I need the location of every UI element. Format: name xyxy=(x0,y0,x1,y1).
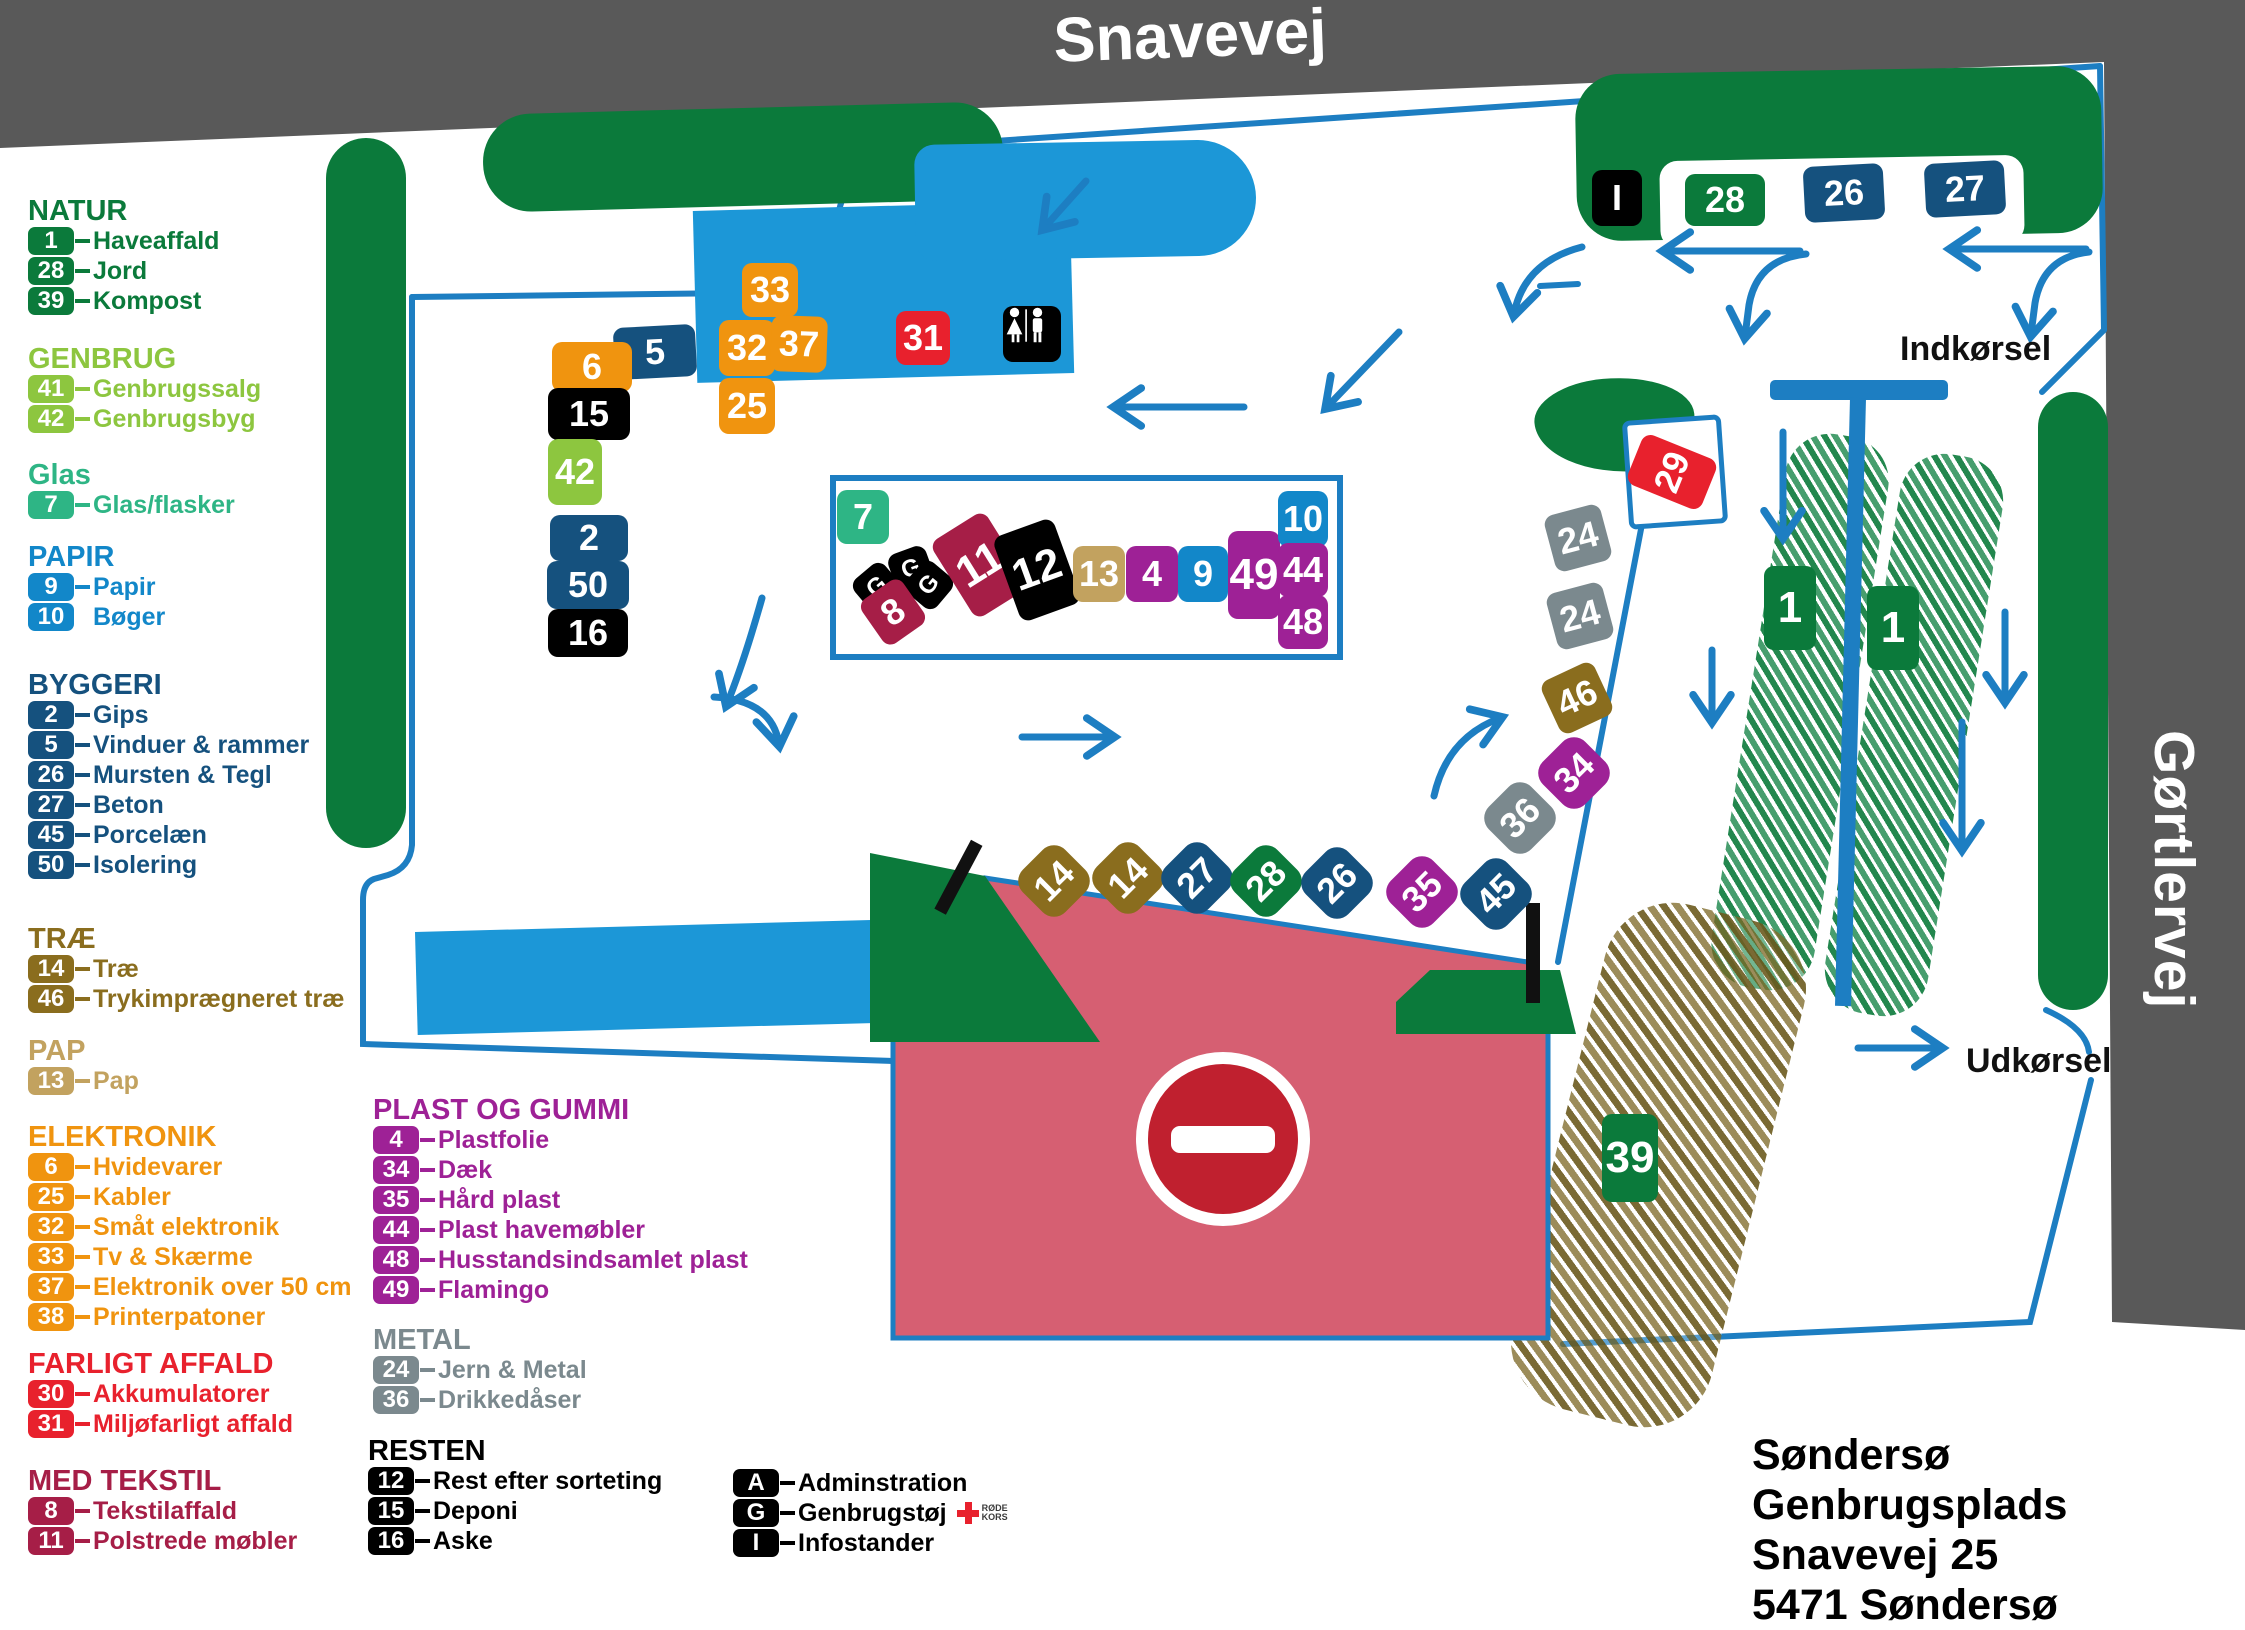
map-tag-26: 26 xyxy=(1803,163,1886,223)
legend-section-papir: PAPIR9Papir10Bøger xyxy=(28,542,165,632)
legend-label-6: Hvidevarer xyxy=(93,1153,222,1182)
legend-badge-11: 11 xyxy=(28,1527,74,1555)
legend-item-admin-G: GGenbrugstøjRØDEKORS xyxy=(733,1498,1008,1528)
legend-dash xyxy=(75,1165,90,1169)
legend-header-pap: PAP xyxy=(28,1036,139,1066)
map-tag-13: 13 xyxy=(1073,546,1125,602)
legend-item-genbrug-42: 42Genbrugsbyg xyxy=(28,404,261,434)
legend-item-plast-44: 44Plast havemøbler xyxy=(373,1215,748,1245)
legend-dash xyxy=(75,773,90,777)
map-tag-50: 50 xyxy=(547,561,629,609)
legend-label-25: Kabler xyxy=(93,1183,171,1212)
legend-label-15: Deponi xyxy=(433,1497,518,1526)
legend-label-7: Glas/flasker xyxy=(93,491,235,520)
legend-item-tekstil-11: 11Polstrede møbler xyxy=(28,1526,297,1556)
legend-dash xyxy=(75,863,90,867)
legend-label-39: Kompost xyxy=(93,287,201,316)
legend-badge-12: 12 xyxy=(368,1467,414,1495)
map-tag-27: 27 xyxy=(1924,160,2007,218)
legend-item-natur-28: 28Jord xyxy=(28,256,219,286)
legend-item-plast-4: 4Plastfolie xyxy=(373,1125,748,1155)
no-entry-bar xyxy=(1171,1126,1275,1153)
legend-dash xyxy=(415,1479,430,1483)
legend-badge-39: 39 xyxy=(28,287,74,315)
legend-label-36: Drikkedåser xyxy=(438,1386,581,1415)
legend-section-admin: AAdminstrationGGenbrugstøjRØDEKORSIInfos… xyxy=(733,1468,1008,1558)
legend-item-plast-49: 49Flamingo xyxy=(373,1275,748,1305)
exit-label: Udkørsel xyxy=(1966,1042,2112,1081)
legend-label-13: Pap xyxy=(93,1067,139,1096)
legend-item-resten-12: 12Rest efter sorteting xyxy=(368,1466,662,1496)
legend-section-glas: Glas7Glas/flasker xyxy=(28,460,235,520)
legend-label-37: Elektronik over 50 cm xyxy=(93,1273,351,1302)
map-tag-16: 16 xyxy=(548,609,628,657)
legend-header-farligt: FARLIGT AFFALD xyxy=(28,1349,293,1379)
legend-dash xyxy=(75,833,90,837)
legend-item-natur-39: 39Kompost xyxy=(28,286,219,316)
map-tag-1: 1 xyxy=(1764,566,1816,650)
legend-dash xyxy=(75,503,90,507)
map-tag-1: 1 xyxy=(1867,586,1919,670)
legend-label-16: Aske xyxy=(433,1527,493,1556)
legend-dash xyxy=(75,1225,90,1229)
legend-item-elektronik-33: 33Tv & Skærme xyxy=(28,1242,351,1272)
legend-label-27: Beton xyxy=(93,791,164,820)
legend-item-elektronik-32: 32Småt elektronik xyxy=(28,1212,351,1242)
map-tag-i: I xyxy=(1592,170,1642,226)
red-cross-text: RØDEKORS xyxy=(982,1504,1008,1522)
legend-header-genbrug: GENBRUG xyxy=(28,344,261,374)
legend-label-49: Flamingo xyxy=(438,1276,549,1305)
legend-header-metal: METAL xyxy=(373,1325,587,1355)
legend-label-9: Papir xyxy=(93,573,156,602)
legend-item-admin-A: AAdminstration xyxy=(733,1468,1008,1498)
legend-dash xyxy=(420,1258,435,1262)
map-tag-37: 37 xyxy=(770,315,828,373)
legend-label-26: Mursten & Tegl xyxy=(93,761,272,790)
legend-section-natur: NATUR1Haveaffald28Jord39Kompost xyxy=(28,196,219,316)
address-block: Søndersø Genbrugsplads Snavevej 25 5471 … xyxy=(1752,1430,2245,1630)
legend-header-byggeri: BYGGERI xyxy=(28,670,309,700)
map-tag-25: 25 xyxy=(719,378,775,434)
legend-badge-27: 27 xyxy=(28,791,74,819)
address-line3: 5471 Søndersø xyxy=(1752,1580,2245,1630)
legend-badge-24: 24 xyxy=(373,1356,419,1384)
legend-item-papir-10: 10Bøger xyxy=(28,602,165,632)
legend-item-byggeri-26: 26Mursten & Tegl xyxy=(28,760,309,790)
legend-badge-30: 30 xyxy=(28,1380,74,1408)
legend-badge-7: 7 xyxy=(28,491,74,519)
legend-badge-36: 36 xyxy=(373,1386,419,1414)
legend-label-32: Småt elektronik xyxy=(93,1213,279,1242)
legend-label-8: Tekstilaffald xyxy=(93,1497,237,1526)
legend-badge-33: 33 xyxy=(28,1243,74,1271)
map-tag-2: 2 xyxy=(550,515,628,561)
legend-badge-46: 46 xyxy=(28,985,74,1013)
legend-badge-10: 10 xyxy=(28,603,74,631)
legend-item-natur-1: 1Haveaffald xyxy=(28,226,219,256)
legend-badge-41: 41 xyxy=(28,375,74,403)
legend-item-farligt-30: 30Akkumulatorer xyxy=(28,1379,293,1409)
legend-label-31: Miljøfarligt affald xyxy=(93,1410,293,1439)
legend-item-admin-I: IInfostander xyxy=(733,1528,1008,1558)
traffic-arrows xyxy=(0,0,2245,1587)
legend-item-byggeri-2: 2Gips xyxy=(28,700,309,730)
legend-label-50: Isolering xyxy=(93,851,197,880)
legend-dash xyxy=(75,387,90,391)
legend-label-30: Akkumulatorer xyxy=(93,1380,269,1409)
map-tag-28: 28 xyxy=(1685,174,1765,226)
legend-dash xyxy=(420,1168,435,1172)
legend-badge-32: 32 xyxy=(28,1213,74,1241)
legend-dash xyxy=(420,1138,435,1142)
legend-badge-37: 37 xyxy=(28,1273,74,1301)
legend-label-46: Trykimprægneret træ xyxy=(93,985,344,1014)
legend-badge-G: G xyxy=(733,1499,779,1527)
legend-badge-25: 25 xyxy=(28,1183,74,1211)
map-tag-15: 15 xyxy=(548,388,630,440)
address-line1: Søndersø Genbrugsplads xyxy=(1752,1430,2245,1530)
red-cross-logo: RØDEKORS xyxy=(957,1502,1008,1524)
legend-label-45: Porcelæn xyxy=(93,821,207,850)
legend-item-byggeri-45: 45Porcelæn xyxy=(28,820,309,850)
legend-badge-A: A xyxy=(733,1469,779,1497)
legend-dash xyxy=(780,1541,795,1545)
legend-label-24: Jern & Metal xyxy=(438,1356,587,1385)
map-tag-6: 6 xyxy=(552,342,632,392)
legend-item-genbrug-41: 41Genbrugssalg xyxy=(28,374,261,404)
map-tag-wc xyxy=(1003,306,1061,362)
legend-header-natur: NATUR xyxy=(28,196,219,226)
legend-item-metal-24: 24Jern & Metal xyxy=(373,1355,587,1385)
legend-badge-14: 14 xyxy=(28,955,74,983)
legend-item-elektronik-37: 37Elektronik over 50 cm xyxy=(28,1272,351,1302)
legend-section-tekstil: MED TEKSTIL8Tekstilaffald11Polstrede møb… xyxy=(28,1466,297,1556)
map-tag-31: 31 xyxy=(896,311,950,365)
legend-item-tekstil-8: 8Tekstilaffald xyxy=(28,1496,297,1526)
legend-dash xyxy=(75,1509,90,1513)
legend-label-2: Gips xyxy=(93,701,149,730)
legend-section-genbrug: GENBRUG41Genbrugssalg42Genbrugsbyg xyxy=(28,344,261,434)
legend-item-resten-15: 15Deponi xyxy=(368,1496,662,1526)
legend-item-byggeri-50: 50Isolering xyxy=(28,850,309,880)
no-entry-sign xyxy=(1136,1052,1310,1226)
legend-dash xyxy=(75,585,90,589)
legend-label-28: Jord xyxy=(93,257,147,286)
legend-dash xyxy=(75,239,90,243)
legend-header-resten: RESTEN xyxy=(368,1436,662,1466)
legend-label-33: Tv & Skærme xyxy=(93,1243,253,1272)
legend-dash xyxy=(75,743,90,747)
legend-badge-13: 13 xyxy=(28,1067,74,1095)
legend-label-I: Infostander xyxy=(798,1529,934,1558)
address-line2: Snavevej 25 xyxy=(1752,1530,2245,1580)
legend-section-pap: PAP13Pap xyxy=(28,1036,139,1096)
legend-item-byggeri-5: 5Vinduer & rammer xyxy=(28,730,309,760)
map-tag-32: 32 xyxy=(719,320,775,376)
legend-dash xyxy=(75,1315,90,1319)
legend-item-elektronik-25: 25Kabler xyxy=(28,1182,351,1212)
legend-item-trae-14: 14Træ xyxy=(28,954,344,984)
legend-item-plast-48: 48Husstandsindsamlet plast xyxy=(373,1245,748,1275)
legend-dash xyxy=(75,417,90,421)
legend-label-10: Bøger xyxy=(93,603,165,632)
legend-dash xyxy=(75,713,90,717)
map-tag-4: 4 xyxy=(1126,546,1178,602)
legend-item-pap-13: 13Pap xyxy=(28,1066,139,1096)
legend-badge-48: 48 xyxy=(373,1246,419,1274)
legend-label-42: Genbrugsbyg xyxy=(93,405,256,434)
legend-badge-6: 6 xyxy=(28,1153,74,1181)
legend-dash xyxy=(420,1198,435,1202)
legend-dash xyxy=(75,997,90,1001)
legend-dash xyxy=(75,1422,90,1426)
legend-dash xyxy=(415,1539,430,1543)
legend-item-glas-7: 7Glas/flasker xyxy=(28,490,235,520)
legend-label-5: Vinduer & rammer xyxy=(93,731,309,760)
legend-label-11: Polstrede møbler xyxy=(93,1527,297,1556)
legend-label-35: Hård plast xyxy=(438,1186,560,1215)
legend-section-elektronik: ELEKTRONIK6Hvidevarer25Kabler32Småt elek… xyxy=(28,1122,351,1332)
legend-section-byggeri: BYGGERI2Gips5Vinduer & rammer26Mursten &… xyxy=(28,670,309,880)
legend-badge-42: 42 xyxy=(28,405,74,433)
map-tag-49: 49 xyxy=(1228,531,1280,619)
map-tag-48: 48 xyxy=(1278,595,1328,649)
legend-dash xyxy=(75,1285,90,1289)
legend-dash xyxy=(420,1398,435,1402)
legend-item-plast-34: 34Dæk xyxy=(373,1155,748,1185)
legend-badge-50: 50 xyxy=(28,851,74,879)
legend-label-4: Plastfolie xyxy=(438,1126,549,1155)
legend-badge-2: 2 xyxy=(28,701,74,729)
legend-dash xyxy=(75,1539,90,1543)
legend-label-12: Rest efter sorteting xyxy=(433,1467,662,1496)
legend-header-glas: Glas xyxy=(28,460,235,490)
legend-label-A: Adminstration xyxy=(798,1469,967,1498)
legend-label-44: Plast havemøbler xyxy=(438,1216,645,1245)
legend-header-tekstil: MED TEKSTIL xyxy=(28,1466,297,1496)
legend-section-resten: RESTEN12Rest efter sorteting15Deponi16As… xyxy=(368,1436,662,1556)
legend-label-G: Genbrugstøj xyxy=(798,1499,947,1528)
map-tag-42: 42 xyxy=(548,439,602,505)
legend-dash xyxy=(420,1288,435,1292)
legend-dash xyxy=(415,1509,430,1513)
legend-badge-5: 5 xyxy=(28,731,74,759)
map-tag-39: 39 xyxy=(1602,1114,1658,1202)
legend-item-elektronik-6: 6Hvidevarer xyxy=(28,1152,351,1182)
legend-header-plast: PLAST OG GUMMI xyxy=(373,1095,748,1125)
legend-dash xyxy=(420,1228,435,1232)
map-tag-44: 44 xyxy=(1278,543,1328,597)
legend-label-38: Printerpatoner xyxy=(93,1303,265,1332)
legend-dash xyxy=(75,1255,90,1259)
legend-badge-31: 31 xyxy=(28,1410,74,1438)
legend-dash xyxy=(75,1392,90,1396)
restroom-icon xyxy=(1003,306,1049,344)
legend-dash xyxy=(75,803,90,807)
red-cross-icon xyxy=(957,1502,979,1524)
legend-item-metal-36: 36Drikkedåser xyxy=(373,1385,587,1415)
legend-badge-15: 15 xyxy=(368,1497,414,1525)
legend-item-papir-9: 9Papir xyxy=(28,572,165,602)
legend-badge-9: 9 xyxy=(28,573,74,601)
legend-dash xyxy=(75,1195,90,1199)
legend-badge-34: 34 xyxy=(373,1156,419,1184)
legend-label-1: Haveaffald xyxy=(93,227,219,256)
legend-section-plast: PLAST OG GUMMI4Plastfolie34Dæk35Hård pla… xyxy=(373,1095,748,1305)
legend-item-plast-35: 35Hård plast xyxy=(373,1185,748,1215)
legend-badge-4: 4 xyxy=(373,1126,419,1154)
legend-label-34: Dæk xyxy=(438,1156,492,1185)
legend-item-byggeri-27: 27Beton xyxy=(28,790,309,820)
legend-badge-8: 8 xyxy=(28,1497,74,1525)
legend-badge-44: 44 xyxy=(373,1216,419,1244)
legend-dash xyxy=(420,1368,435,1372)
legend-dash xyxy=(75,1079,90,1083)
legend-label-14: Træ xyxy=(93,955,139,984)
legend-badge-35: 35 xyxy=(373,1186,419,1214)
legend-badge-49: 49 xyxy=(373,1276,419,1304)
entrance-label: Indkørsel xyxy=(1900,330,2051,369)
legend-section-farligt: FARLIGT AFFALD30Akkumulatorer31Miljøfarl… xyxy=(28,1349,293,1439)
legend-item-resten-16: 16Aske xyxy=(368,1526,662,1556)
legend-section-trae: TRÆ14Træ46Trykimprægneret træ xyxy=(28,924,344,1014)
legend-badge-28: 28 xyxy=(28,257,74,285)
legend-badge-1: 1 xyxy=(28,227,74,255)
map-tag-7: 7 xyxy=(837,490,889,544)
legend-dash xyxy=(75,269,90,273)
legend-section-metal: METAL24Jern & Metal36Drikkedåser xyxy=(373,1325,587,1415)
legend-header-trae: TRÆ xyxy=(28,924,344,954)
legend-badge-I: I xyxy=(733,1529,779,1557)
legend-dash xyxy=(780,1511,795,1515)
map-tag-9: 9 xyxy=(1178,546,1228,602)
map-tag-33: 33 xyxy=(742,263,798,317)
legend-badge-45: 45 xyxy=(28,821,74,849)
legend-item-elektronik-38: 38Printerpatoner xyxy=(28,1302,351,1332)
legend-header-papir: PAPIR xyxy=(28,542,165,572)
legend-dash xyxy=(75,967,90,971)
map-tag-10: 10 xyxy=(1278,491,1328,547)
legend-badge-38: 38 xyxy=(28,1303,74,1331)
legend-header-elektronik: ELEKTRONIK xyxy=(28,1122,351,1152)
legend-label-41: Genbrugssalg xyxy=(93,375,261,404)
legend-dash xyxy=(780,1481,795,1485)
legend-label-48: Husstandsindsamlet plast xyxy=(438,1246,748,1275)
legend-dash xyxy=(75,299,90,303)
legend-badge-26: 26 xyxy=(28,761,74,789)
legend-item-farligt-31: 31Miljøfarligt affald xyxy=(28,1409,293,1439)
legend-badge-16: 16 xyxy=(368,1527,414,1555)
legend-item-trae-46: 46Trykimprægneret træ xyxy=(28,984,344,1014)
